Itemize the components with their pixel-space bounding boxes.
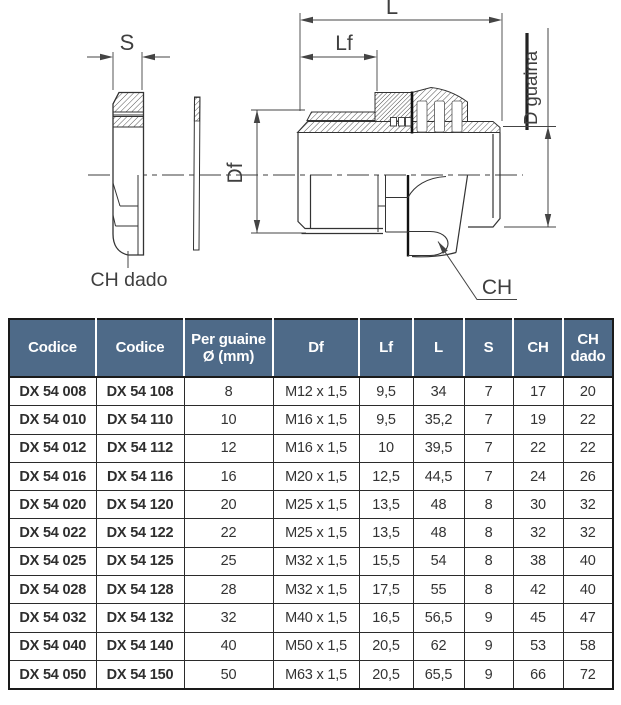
table-cell: DX 54 122: [96, 519, 184, 547]
table-header-row: CodiceCodicePer guaine Ø (mm)DfLfLSCHCH …: [9, 319, 613, 377]
table-cell: DX 54 032: [9, 604, 96, 632]
table-row: DX 54 012DX 54 11212M16 x 1,51039,572222: [9, 434, 613, 462]
table-row: DX 54 022DX 54 12222M25 x 1,513,54883232: [9, 519, 613, 547]
table-row: DX 54 010DX 54 11010M16 x 1,59,535,27192…: [9, 406, 613, 434]
table-cell: 40: [184, 632, 273, 660]
table-cell: 56,5: [413, 604, 464, 632]
column-header: Codice: [96, 319, 184, 377]
table-cell: 54: [413, 547, 464, 575]
lamella-slot: [452, 101, 462, 132]
table-cell: 17: [513, 377, 563, 406]
o-ring: [399, 118, 405, 127]
table-cell: 7: [464, 462, 513, 490]
table-cell: 12,5: [359, 462, 413, 490]
table-cell: M32 x 1,5: [273, 547, 359, 575]
dim-label-s: S: [120, 30, 135, 55]
table-cell: 13,5: [359, 519, 413, 547]
arrowhead-icon: [100, 54, 113, 60]
table-cell: 28: [184, 576, 273, 604]
table-cell: 8: [464, 576, 513, 604]
table-header: CodiceCodicePer guaine Ø (mm)DfLfLSCHCH …: [9, 319, 613, 377]
table-cell: 55: [413, 576, 464, 604]
table-cell: DX 54 008: [9, 377, 96, 406]
column-header: S: [464, 319, 513, 377]
table-cell: 40: [563, 576, 613, 604]
lamella-slot: [435, 101, 445, 132]
table-cell: 38: [513, 547, 563, 575]
dim-label-d-guaina: D guaina: [520, 50, 541, 125]
table-row: DX 54 025DX 54 12525M32 x 1,515,55483840: [9, 547, 613, 575]
table-cell: 10: [184, 406, 273, 434]
table-cell: 30: [513, 491, 563, 519]
table-cell: 8: [464, 547, 513, 575]
table-cell: 26: [563, 462, 613, 490]
table-cell: 24: [513, 462, 563, 490]
table-cell: 9: [464, 660, 513, 689]
table-cell: 65,5: [413, 660, 464, 689]
column-header: Per guaine Ø (mm): [184, 319, 273, 377]
o-ring: [391, 118, 397, 127]
table-cell: 8: [464, 491, 513, 519]
dome-pocket: [408, 232, 448, 256]
table-row: DX 54 020DX 54 12020M25 x 1,513,54883032: [9, 491, 613, 519]
table-cell: 22: [184, 519, 273, 547]
table-cell: 8: [464, 519, 513, 547]
table-row: DX 54 040DX 54 14040M50 x 1,520,56295358: [9, 632, 613, 660]
column-header: Codice: [9, 319, 96, 377]
table-cell: DX 54 020: [9, 491, 96, 519]
table-cell: M12 x 1,5: [273, 377, 359, 406]
body-right-edge: [468, 133, 500, 228]
table-cell: 9: [464, 632, 513, 660]
table-cell: 9,5: [359, 377, 413, 406]
arrowhead-icon: [545, 127, 551, 140]
table-cell: 34: [413, 377, 464, 406]
table-cell: M32 x 1,5: [273, 576, 359, 604]
column-header: CH dado: [563, 319, 613, 377]
table-row: DX 54 032DX 54 13232M40 x 1,516,556,5945…: [9, 604, 613, 632]
arrowhead-icon: [254, 220, 260, 233]
table-cell: 58: [563, 632, 613, 660]
dimensions-table: CodiceCodicePer guaine Ø (mm)DfLfLSCHCH …: [8, 318, 614, 690]
table-cell: 48: [413, 491, 464, 519]
table-cell: 45: [513, 604, 563, 632]
slot-lower-lines: [378, 175, 386, 232]
table-cell: 22: [513, 434, 563, 462]
arrowhead-icon: [300, 54, 313, 60]
table-cell: 47: [563, 604, 613, 632]
table-cell: DX 54 112: [96, 434, 184, 462]
table-cell: 9: [464, 604, 513, 632]
table-cell: DX 54 150: [96, 660, 184, 689]
table-cell: 10: [359, 434, 413, 462]
table-cell: 32: [563, 519, 613, 547]
dimension-d-guaina: D guaina: [503, 28, 556, 227]
body-thin-wall: [307, 112, 375, 121]
table-cell: 62: [413, 632, 464, 660]
table-row: DX 54 028DX 54 12828M32 x 1,517,55584240: [9, 576, 613, 604]
table-cell: DX 54 050: [9, 660, 96, 689]
table-cell: DX 54 028: [9, 576, 96, 604]
table-cell: DX 54 025: [9, 547, 96, 575]
arrowhead-icon: [254, 110, 260, 123]
table-cell: DX 54 012: [9, 434, 96, 462]
table-cell: M50 x 1,5: [273, 632, 359, 660]
table-cell: M25 x 1,5: [273, 519, 359, 547]
table-cell: M16 x 1,5: [273, 434, 359, 462]
arrowhead-icon: [545, 214, 551, 227]
column-header: Df: [273, 319, 359, 377]
dim-label-l: L: [386, 0, 398, 19]
table-cell: DX 54 108: [96, 377, 184, 406]
table-cell: 22: [563, 406, 613, 434]
dimension-s: S: [87, 30, 170, 90]
table-cell: 66: [513, 660, 563, 689]
table-row: DX 54 008DX 54 1088M12 x 1,59,53471720: [9, 377, 613, 406]
table-cell: 48: [413, 519, 464, 547]
dimension-df: Df: [224, 110, 306, 233]
washer-hatch: [194, 98, 200, 122]
table-cell: 39,5: [413, 434, 464, 462]
table-cell: 20: [184, 491, 273, 519]
table-cell: DX 54 016: [9, 462, 96, 490]
table-cell: 20,5: [359, 632, 413, 660]
table-cell: 32: [513, 519, 563, 547]
dim-label-ch: CH: [482, 276, 512, 299]
table-cell: 8: [184, 377, 273, 406]
thread-spigot: [298, 133, 383, 234]
table-cell: 32: [563, 491, 613, 519]
table-cell: M16 x 1,5: [273, 406, 359, 434]
gland-body-view: L Lf Df: [224, 0, 556, 300]
table-cell: DX 54 140: [96, 632, 184, 660]
table-cell: 32: [184, 604, 273, 632]
technical-drawing: S CH dado L: [0, 0, 621, 315]
lamella-slot: [417, 101, 427, 132]
nut-washer-band: [113, 117, 144, 128]
nut-section-view: S CH dado: [87, 30, 200, 291]
table-cell: DX 54 125: [96, 547, 184, 575]
table-cell: 7: [464, 406, 513, 434]
table-cell: 12: [184, 434, 273, 462]
arrowhead-icon: [142, 54, 155, 60]
dome-arc: [386, 177, 447, 233]
dim-label-df: Df: [224, 162, 247, 183]
datasheet-page: S CH dado L: [0, 0, 621, 705]
table-cell: 35,2: [413, 406, 464, 434]
table-row: DX 54 050DX 54 15050M63 x 1,520,565,5966…: [9, 660, 613, 689]
table-cell: M20 x 1,5: [273, 462, 359, 490]
dim-label-lf: Lf: [335, 32, 353, 55]
table-cell: DX 54 022: [9, 519, 96, 547]
table-cell: 15,5: [359, 547, 413, 575]
o-ring: [406, 118, 412, 127]
table-cell: 16,5: [359, 604, 413, 632]
table-cell: 9,5: [359, 406, 413, 434]
table-cell: DX 54 010: [9, 406, 96, 434]
table-cell: 19: [513, 406, 563, 434]
table-cell: 25: [184, 547, 273, 575]
table-cell: 50: [184, 660, 273, 689]
table-cell: DX 54 128: [96, 576, 184, 604]
table-cell: 7: [464, 434, 513, 462]
table-row: DX 54 016DX 54 11616M20 x 1,512,544,5724…: [9, 462, 613, 490]
arrowhead-icon: [489, 17, 502, 23]
column-header: Lf: [359, 319, 413, 377]
table-body: DX 54 008DX 54 1088M12 x 1,59,53471720DX…: [9, 377, 613, 689]
column-header: L: [413, 319, 464, 377]
table-cell: 20: [563, 377, 613, 406]
dimension-lf: Lf: [300, 32, 377, 91]
table-cell: DX 54 040: [9, 632, 96, 660]
arrowhead-icon: [364, 54, 377, 60]
nut-hatch-band: [113, 93, 144, 113]
table-cell: DX 54 120: [96, 491, 184, 519]
table-cell: 53: [513, 632, 563, 660]
table-cell: 20,5: [359, 660, 413, 689]
dimension-ch: CH: [438, 242, 517, 300]
table-cell: DX 54 110: [96, 406, 184, 434]
table-cell: 40: [563, 547, 613, 575]
table-cell: 22: [563, 434, 613, 462]
dim-label-ch-dado: CH dado: [91, 269, 168, 291]
table-cell: DX 54 132: [96, 604, 184, 632]
table-cell: 44,5: [413, 462, 464, 490]
table-cell: M40 x 1,5: [273, 604, 359, 632]
table-cell: 72: [563, 660, 613, 689]
table-cell: 16: [184, 462, 273, 490]
table-cell: 17,5: [359, 576, 413, 604]
table-cell: M25 x 1,5: [273, 491, 359, 519]
table-cell: 42: [513, 576, 563, 604]
table-cell: M63 x 1,5: [273, 660, 359, 689]
table-cell: 7: [464, 377, 513, 406]
table-cell: 13,5: [359, 491, 413, 519]
table-cell: DX 54 116: [96, 462, 184, 490]
arrowhead-icon: [300, 17, 313, 23]
column-header: CH: [513, 319, 563, 377]
